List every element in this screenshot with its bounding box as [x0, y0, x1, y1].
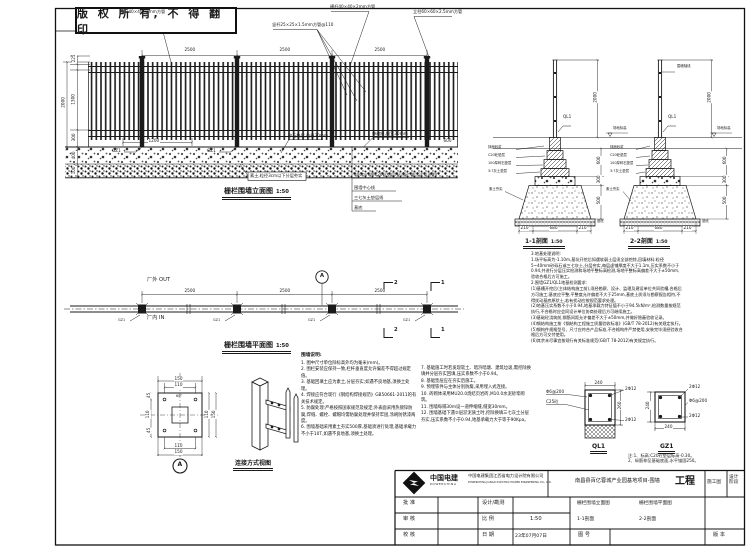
- col-design-label: 设计/勘测: [482, 501, 505, 507]
- company-name-en: POWERCHINA JIANGXI ELECTRIC POWER ENGINE…: [468, 482, 552, 485]
- dim-225: 225: [72, 54, 77, 63]
- section-2-2-title-text: 2-2剖面: [630, 236, 653, 245]
- s2-callout-crushed: 100厚碎石垫层: [610, 162, 633, 166]
- callout-post: 立柱60×60×2.5mm方管: [413, 10, 462, 15]
- wall-notes-title: 围墙说明:: [301, 353, 322, 358]
- section-2-2-title: 2-2剖面 1:50: [628, 236, 670, 249]
- ql1-label: QL1: [668, 115, 676, 120]
- callout-picket: 竖杆25×25×1.5mm方管@110: [272, 23, 333, 28]
- section-2-2-scale: 1:50: [656, 240, 668, 245]
- bay-dim: 2500: [374, 48, 386, 53]
- plan-gz1-label: GZ1: [308, 319, 315, 323]
- project-type: 工程: [675, 476, 695, 488]
- s2-callout-lime: 3:7灰土垫层: [610, 170, 629, 174]
- dwg-name-section1: 1-1剖面: [577, 517, 594, 522]
- elevation-title: 栅栏围墙立面图 1:50: [222, 186, 291, 200]
- dwg-no-label: 图 号: [578, 533, 590, 539]
- gz1-rebar-top-label: 2Φ12: [689, 385, 700, 390]
- brand-name-en: POWERCHINA: [430, 483, 457, 486]
- detA-dim-150-top: 150: [174, 377, 183, 382]
- bay-dim: 2500: [184, 48, 196, 53]
- row-approve-label: 批 准: [403, 501, 415, 507]
- section-mark-1-bottom: 1: [441, 328, 445, 334]
- ql1-title-text: QL1: [592, 443, 605, 450]
- dim-400: 400: [72, 151, 77, 160]
- connection-view-title: 连接方式视图: [233, 458, 273, 471]
- s2-pit-label: 素土夯实: [606, 188, 620, 192]
- s1-dim-600: 600: [597, 156, 602, 165]
- s1-base-label: 基底: [597, 220, 604, 224]
- powerchina-logo: [403, 472, 426, 495]
- plan-gz1-label: GZ1: [118, 319, 125, 323]
- project-name: 南昌县百亿蓉城产业园基地项目-围墙: [575, 479, 660, 485]
- s2-dim-2000: 2000: [707, 92, 712, 104]
- dim-100: 100: [72, 166, 77, 175]
- s2-dim-300: 300: [723, 175, 728, 184]
- row-check-label: 校 核: [403, 533, 415, 539]
- section-1-1-title: 1-1剖面 1:50: [523, 236, 565, 249]
- callout-rail-mid: 横杆40×40×2mm方管: [330, 5, 375, 10]
- ql1-label: QL1: [563, 115, 571, 120]
- wall-axis-label: 围墙轴线: [677, 65, 691, 69]
- detail-a-title-mark: A: [178, 462, 183, 469]
- bay-dim: 2500: [279, 48, 291, 53]
- detA-dim-60deg: 60°: [176, 395, 182, 399]
- elevation-drawing: [63, 12, 458, 212]
- brand-name: 中国电建: [430, 474, 458, 482]
- detail-a-drawing: [140, 373, 220, 473]
- callout-soil: 素土,粒径3cm以下分层夯实: [250, 174, 302, 179]
- s2-dim-210: 210: [683, 226, 692, 231]
- gz1-flag-label: GZ1: [112, 149, 121, 154]
- elevation-title-text: 栅栏围墙立面图: [224, 186, 273, 196]
- wall-notes-left-column: 1. 图中尺寸单位除标高外均为毫米(mm)。 2. 围栏安装应保持一致,栏杆垂直…: [301, 361, 417, 438]
- plan-out-label: 厂外 OUT: [147, 278, 170, 284]
- s2-base-label: 基底: [702, 220, 709, 224]
- base-callout-4: 基底: [354, 206, 362, 211]
- ground-level-label: 场地标高: [717, 127, 731, 131]
- detA-dim-45-left-top: 45: [147, 392, 152, 398]
- s1-dim-210: 210: [520, 226, 529, 231]
- dim-2000: 2000: [61, 97, 66, 109]
- s2-dim-500: 500: [723, 196, 728, 205]
- section-1-1-scale: 1:50: [551, 240, 563, 245]
- gz1-dim-240-left: 240: [646, 401, 651, 410]
- s2-dim-680: 680: [654, 226, 663, 231]
- s1-callout-lime: 3:7灰土垫层: [488, 170, 507, 174]
- base-callout-3: 三七灰土垫层线: [354, 196, 383, 201]
- s1-dim-680: 680: [549, 226, 558, 231]
- ql1-dim-240: 240: [594, 381, 603, 386]
- gz1-title-text: GZ1: [660, 443, 673, 450]
- s1-dim-2000: 2000: [593, 92, 598, 104]
- plan-gz-flags: [130, 315, 425, 321]
- gz1-stirrup-label: Φ6@200: [689, 399, 707, 404]
- s1-dim-500: 500: [597, 196, 602, 205]
- detA-dim-45-left-bottom: 45: [147, 427, 152, 433]
- s1-dim-210: 210: [578, 226, 587, 231]
- s1-callout-c20: C20砼垫层: [488, 154, 505, 158]
- s2-dim-600: 600: [723, 156, 728, 165]
- plan-in-label: 厂内 IN: [147, 316, 164, 322]
- connection-view-drawing: [252, 378, 298, 450]
- plan-title: 栅栏围墙平面图 1:50: [222, 340, 291, 354]
- row-review-label: 审 核: [403, 517, 415, 523]
- drawing-sheet: 版 权 所 有, 不 得 翻 印 横杆40×40×2mm方管 横杆40×40×2…: [0, 0, 750, 550]
- plan-bay-dim: 2500: [184, 289, 196, 294]
- gz1-dim-240-bottom: 240: [664, 425, 673, 430]
- plan-gz1-label: GZ1: [213, 319, 220, 323]
- plan-bay-dim: 2500: [374, 289, 386, 294]
- plan-title-text: 栅栏围墙平面图: [224, 340, 273, 350]
- callout-rail-top: 横杆40×40×2mm方管: [120, 10, 165, 15]
- plan-drawing: [64, 271, 464, 338]
- ql1-title: QL1: [590, 443, 607, 454]
- callout-gravel: 碎石垫层,粒径30mm: [288, 134, 328, 139]
- gravel-strip: [65, 148, 458, 164]
- s1-pit-label: 素土夯实: [489, 188, 503, 192]
- connection-view-title-text: 连接方式视图: [235, 458, 271, 467]
- stage-tag: 施工图: [707, 480, 721, 485]
- s1-callout-mortar: 抹面砂浆: [488, 146, 502, 150]
- callout-joint: 伸缩缝,缝宽30mm: [372, 132, 408, 137]
- date-value: 23年07月07日: [515, 534, 547, 539]
- dim-600: 600: [443, 139, 452, 144]
- plan-scale: 1:50: [276, 343, 289, 349]
- dim-1300: 1300: [71, 94, 76, 106]
- rebar-details: [546, 382, 688, 438]
- section-1-1-title-text: 1-1剖面: [525, 236, 548, 245]
- base-callout-2: 围墙中心线: [354, 186, 375, 191]
- s2-callout-c20: C20砼垫层: [610, 154, 627, 158]
- scale-value: 1:50: [530, 517, 542, 523]
- version-label: 版 本: [713, 533, 725, 539]
- col-scale-label: 比 例: [482, 517, 494, 523]
- stage-label: 设计阶段: [729, 475, 739, 486]
- dim-1200: 1200: [148, 139, 160, 144]
- dim-300: 300: [72, 133, 77, 142]
- detA-dim-110-bottom: 110: [174, 444, 183, 449]
- geotech-notes: 3.地基处理说明: 1.场平标高为-1.10m,基坑开挖后如遇软弱土层须全部挖除…: [531, 251, 683, 344]
- s2-callout-mortar: 抹面砂浆: [610, 146, 624, 150]
- ql1-stirrup-label: Φ6@200: [546, 390, 564, 395]
- dwg-name-section2: 2-2剖面: [639, 517, 656, 522]
- s1-callout-crushed: 100厚碎石垫层: [488, 162, 511, 166]
- s1-dim-300: 300: [597, 175, 602, 184]
- section-marks: [384, 283, 440, 338]
- detA-dim-110-left: 110: [146, 410, 151, 419]
- detA-dim-150-bottom: 150: [174, 450, 183, 455]
- company-name: 中国电建集团江西省电力设计院有限公司: [468, 474, 543, 479]
- plan-bay-dim: 2500: [279, 289, 291, 294]
- ground-level-label: 场地标高: [613, 127, 627, 131]
- ql1-dim-260: 260: [618, 401, 623, 410]
- section-mark-1-top: 1: [441, 281, 445, 287]
- section-mark-2-top: 2: [394, 281, 398, 287]
- section-mark-2-bottom: 2: [394, 328, 398, 334]
- wall-notes-right-column: 7. 基础施工时若发现软土、暗浜暗塘、建筑垃圾,需挖除换填并分层夯实回填,压实系…: [421, 366, 531, 424]
- col-date-label: 日 期: [482, 533, 494, 539]
- ql1-concrete-label: C25砼: [546, 400, 558, 405]
- gz1-flag-label: GZ1: [207, 149, 216, 154]
- ql1-rebar-bottom-label: 2Φ12: [625, 418, 636, 423]
- detA-dim-150-right: 150: [212, 410, 217, 419]
- s2-dim-210: 210: [625, 226, 634, 231]
- section-2-2: [620, 60, 732, 234]
- detA-dim-110-right: 110: [205, 410, 210, 419]
- rebar-note: 注:1、标高:C20砼垫层标高-0.30。 2、纵筋伸至基础底面,水平锚固250…: [628, 454, 699, 464]
- dwg-name-elevation: 栅栏围墙立面图: [577, 501, 610, 506]
- elevation-scale: 1:50: [276, 189, 289, 195]
- fence-pickets: [90, 62, 457, 140]
- gz1-rebar-bottom-label: 2Φ12: [689, 414, 700, 419]
- dwg-name-plan: 栅栏围墙平面图: [639, 501, 672, 506]
- ql1-rebar-top-label: 2Φ12: [625, 387, 636, 392]
- detA-dim-110-top: 110: [174, 383, 183, 388]
- base-callout-1: 300mm厚C20砼垫层(抗渗砼,做法详见说明): [354, 173, 437, 178]
- plan-gz1-label: GZ1: [403, 319, 410, 323]
- plan-detail-a-mark: A: [320, 274, 324, 280]
